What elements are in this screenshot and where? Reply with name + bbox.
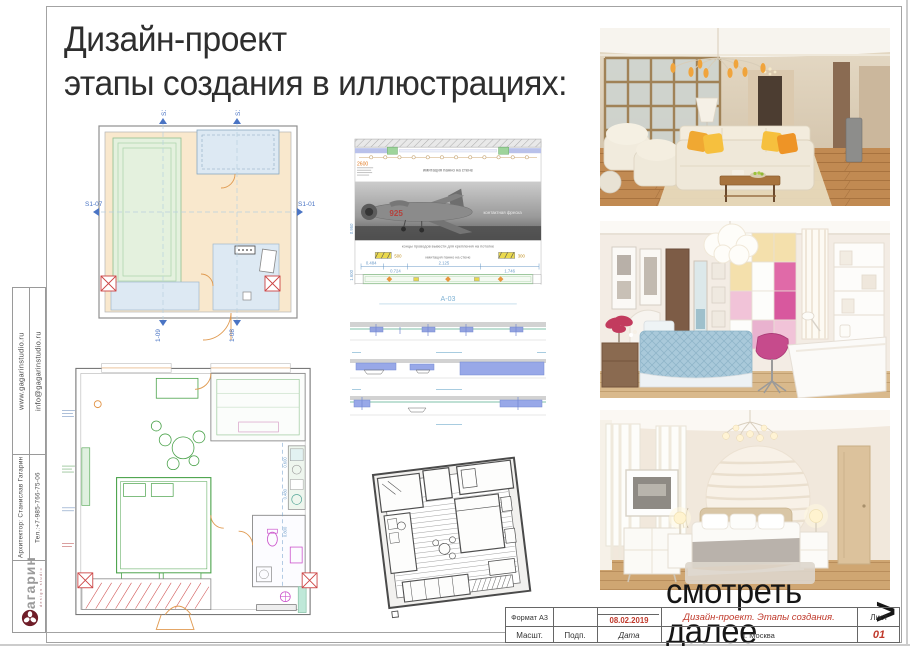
frame-right bbox=[901, 6, 902, 643]
page-title: Дизайн-проект этапы создания в иллюстрац… bbox=[64, 18, 567, 106]
page-title-line1: Дизайн-проект bbox=[64, 18, 567, 62]
sidebar-architect: Архитектор: Станислав Гагарин bbox=[13, 455, 29, 560]
ceiling-section-strip-1 bbox=[348, 320, 548, 346]
scale-label: Масшт. bbox=[506, 626, 553, 644]
svg-text:500: 500 bbox=[394, 253, 402, 258]
ceiling-section-strip-2 bbox=[348, 357, 548, 383]
plan-blue-inset bbox=[197, 130, 279, 174]
door bbox=[838, 446, 870, 564]
elevation-note-bottom: имитация панно на стене bbox=[425, 255, 470, 259]
svg-text:0.950: 0.950 bbox=[349, 223, 354, 234]
sidebar-contacts-box: www.gagarinstudio.ru info@gagarinstudio.… bbox=[12, 287, 46, 455]
svg-text:S1-08: S1-08 bbox=[235, 110, 242, 116]
svg-text:S1-01: S1-01 bbox=[298, 201, 315, 208]
page-edge-right bbox=[906, 0, 908, 646]
sidebar-logo-box: гагарин design studio bbox=[12, 560, 46, 633]
render-photo-kids-bedroom bbox=[600, 221, 890, 398]
elevation-plinth bbox=[355, 275, 541, 284]
speaker bbox=[846, 118, 862, 162]
svg-text:300: 300 bbox=[518, 253, 526, 258]
svg-text:0.600: 0.600 bbox=[282, 457, 287, 468]
svg-text:1.746: 1.746 bbox=[504, 269, 515, 274]
furniture-plan-drawing: 0.600 0.480 0.800 bbox=[62, 348, 324, 633]
city-label: г. Москва bbox=[661, 626, 857, 644]
sidebar-website: www.gagarinstudio.ru bbox=[13, 288, 29, 454]
svg-text:2.125: 2.125 bbox=[439, 260, 450, 265]
elevation-note-fresco: контактная фреска bbox=[483, 210, 522, 215]
frame-top bbox=[46, 6, 902, 7]
elevation-height-note: 2600 bbox=[357, 161, 368, 167]
svg-text:0.724: 0.724 bbox=[390, 269, 401, 274]
drawing-sheet: Дизайн-проект этапы создания в иллюстрац… bbox=[0, 0, 910, 646]
elevation-note-wires: концы проводов вывести для крепления на … bbox=[402, 244, 494, 248]
logo-propeller-icon bbox=[21, 609, 39, 627]
sidebar-phone: Тел.:+7-985-766-75-06 bbox=[30, 455, 46, 560]
pillow bbox=[703, 133, 724, 154]
wall-frames bbox=[712, 263, 725, 327]
svg-text:0.484: 0.484 bbox=[366, 260, 377, 265]
ceiling-section-strip-3 bbox=[348, 394, 548, 420]
pillow bbox=[776, 133, 798, 155]
plane-number: 925 bbox=[389, 209, 403, 218]
svg-text:S1-09: S1-09 bbox=[155, 329, 162, 342]
strip-3-caption bbox=[436, 424, 462, 425]
elevation-drawing: 2600 имитация панно на стене 925 контакт… bbox=[348, 133, 548, 311]
strip-1-left-note bbox=[352, 352, 361, 353]
frame-left bbox=[46, 6, 47, 643]
sheet-label: Лист bbox=[857, 608, 901, 626]
plan2-annotations bbox=[62, 410, 75, 547]
render-photo-living-room bbox=[600, 28, 890, 206]
svg-text:S1-09: S1-09 bbox=[161, 110, 168, 116]
plan2-wardrobe bbox=[82, 579, 211, 610]
svg-text:S1-08: S1-08 bbox=[229, 329, 236, 342]
posters bbox=[612, 247, 661, 309]
elevation-slab bbox=[355, 139, 541, 147]
svg-text:0.800: 0.800 bbox=[282, 526, 287, 537]
plan2-closet bbox=[211, 373, 305, 440]
sheet-number: 01 bbox=[857, 626, 901, 644]
strip-1-caption bbox=[436, 352, 462, 353]
axonometric-drawing bbox=[356, 428, 544, 626]
plan2-kitchen bbox=[288, 446, 305, 510]
sidebar-architect-box: Архитектор: Станислав Гагарин Тел.:+7-98… bbox=[12, 454, 46, 561]
date-value: 08.02.2019 bbox=[597, 614, 661, 626]
title-block: Формат А3 Масшт. Подп. 08.02.2019 Дата Д… bbox=[505, 607, 900, 643]
elevation-plane-mural: 925 контактная фреска bbox=[355, 182, 541, 241]
strip-2-caption bbox=[436, 389, 462, 390]
strip-1-right-note bbox=[537, 352, 546, 353]
logo-tagline: design studio bbox=[37, 567, 45, 607]
format-label: Формат А3 bbox=[506, 608, 553, 626]
sign-label: Подп. bbox=[553, 626, 597, 644]
date-label: Дата bbox=[597, 626, 661, 644]
plan2-bed bbox=[117, 478, 211, 586]
sidebar-email: info@gagarinstudio.ru bbox=[30, 288, 46, 454]
project-title: Дизайн-проект. Этапы создания. bbox=[661, 608, 857, 626]
elevation-note-top: имитация панно на стене bbox=[423, 167, 474, 172]
elevation-cornice bbox=[355, 147, 541, 154]
ceiling-plan-drawing: S1-09 S1-08 S1-07 S1-01 S1-09 S1-08 bbox=[85, 110, 315, 342]
svg-text:1.600: 1.600 bbox=[349, 269, 354, 280]
page-title-line2: этапы создания в иллюстрациях: bbox=[64, 62, 567, 106]
plan-green-zone bbox=[113, 138, 181, 286]
svg-text:S1-07: S1-07 bbox=[85, 201, 103, 208]
svg-text:0.480: 0.480 bbox=[282, 488, 287, 499]
strip-2-left-note bbox=[352, 389, 361, 390]
plan-room-bottom-left bbox=[111, 282, 199, 310]
elevation-caption: А-03 bbox=[441, 296, 456, 303]
render-photo-master-bedroom bbox=[600, 410, 890, 590]
